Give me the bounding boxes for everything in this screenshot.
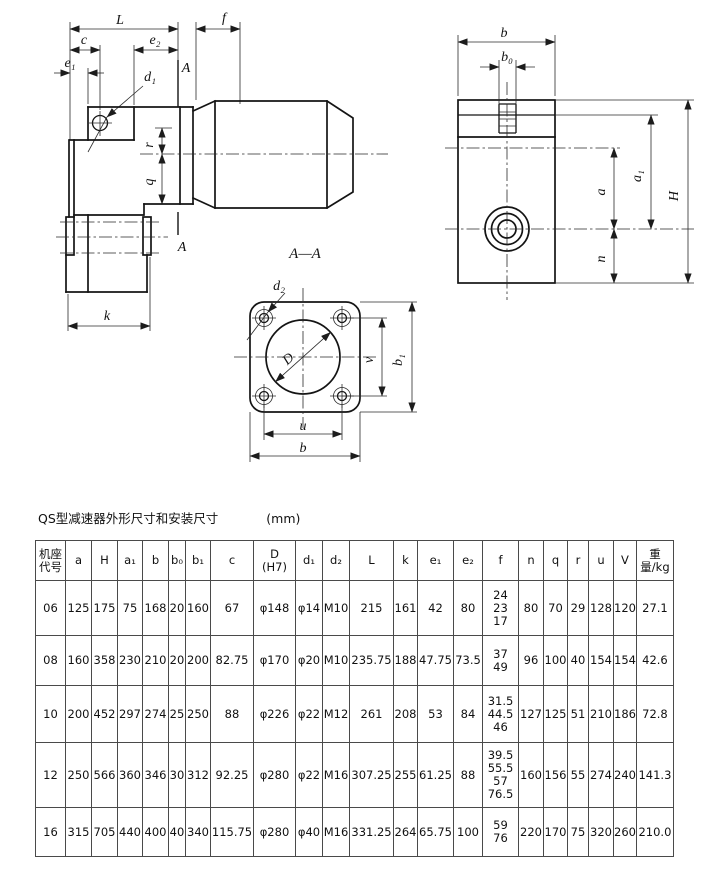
table-cell: 92.25	[211, 743, 254, 808]
table-cell: 440	[118, 808, 143, 857]
dim-label-r: r	[142, 142, 157, 148]
table-row: 16 315 705 440 400 40 340 115.75 φ280 φ4…	[36, 808, 674, 857]
table-cell: 80	[454, 581, 483, 636]
table-title: QS型减速器外形尺寸和安装尺寸	[38, 511, 218, 526]
dim-label-b-section: b	[300, 441, 307, 456]
table-cell: 160	[186, 581, 211, 636]
col-header: 机座 代号	[36, 541, 66, 581]
dim-label-d1: d₁	[144, 70, 156, 85]
table-cell: 210.0	[636, 808, 673, 857]
table-cell: φ280	[254, 808, 296, 857]
section-view: A—A D d₂	[234, 246, 417, 462]
table-cell: 566	[92, 743, 118, 808]
dim-label-k: k	[104, 309, 111, 324]
table-cell: 128	[589, 581, 614, 636]
table-cell: φ40	[296, 808, 323, 857]
table-cell: 75	[568, 808, 589, 857]
table-cell: 70	[544, 581, 568, 636]
table-cell: 240	[614, 743, 637, 808]
table-cell: 75	[118, 581, 143, 636]
dim-label-b-side: b	[501, 26, 508, 41]
table-cell: 170	[544, 808, 568, 857]
table-cell: 307.25	[350, 743, 394, 808]
table-cell: 250	[66, 743, 92, 808]
table-cell: 42.6	[636, 636, 673, 686]
table-cell: 115.75	[211, 808, 254, 857]
table-cell: 96	[519, 636, 544, 686]
table-cell: 230	[118, 636, 143, 686]
dim-label-b1: b₁	[391, 354, 406, 366]
col-header: e₂	[454, 541, 483, 581]
table-cell: 37 49	[483, 636, 519, 686]
dimension-table: 机座 代号 a H a₁ b b₀ b₁ c D (H7) d₁ d₂ L k …	[35, 540, 674, 857]
table-row: 12 250 566 360 346 30 312 92.25 φ280 φ22…	[36, 743, 674, 808]
table-cell: 65.75	[418, 808, 454, 857]
col-header: b₁	[186, 541, 211, 581]
table-row: 08 160 358 230 210 20 200 82.75 φ170 φ20…	[36, 636, 674, 686]
table-cell: 705	[92, 808, 118, 857]
table-cell: M16	[323, 743, 350, 808]
table-cell: 160	[66, 636, 92, 686]
col-header: b	[143, 541, 169, 581]
table-cell: 55	[568, 743, 589, 808]
table-cell: 141.3	[636, 743, 673, 808]
table-cell: 39.5 55.5 57 76.5	[483, 743, 519, 808]
table-cell: 215	[350, 581, 394, 636]
table-cell: 156	[544, 743, 568, 808]
table-cell: 274	[589, 743, 614, 808]
table-cell: φ22	[296, 686, 323, 743]
table-cell: 250	[186, 686, 211, 743]
table-cell: 154	[589, 636, 614, 686]
table-cell: φ20	[296, 636, 323, 686]
table-cell: 29	[568, 581, 589, 636]
dim-label-f: f	[222, 11, 228, 26]
table-cell: 274	[143, 686, 169, 743]
table-cell: φ280	[254, 743, 296, 808]
dim-label-a: a	[594, 189, 609, 196]
col-header: q	[544, 541, 568, 581]
dim-label-u: u	[300, 419, 307, 434]
table-cell: 40	[169, 808, 186, 857]
table-cell: 30	[169, 743, 186, 808]
table-cell: 59 76	[483, 808, 519, 857]
side-view: b b₀ a n a₁ H	[445, 26, 694, 300]
table-cell: 175	[92, 581, 118, 636]
table-cell: 24 23 17	[483, 581, 519, 636]
table-cell: 200	[186, 636, 211, 686]
table-cell: 16	[36, 808, 66, 857]
table-cell: 84	[454, 686, 483, 743]
table-cell: φ22	[296, 743, 323, 808]
col-header: d₂	[323, 541, 350, 581]
table-cell: 346	[143, 743, 169, 808]
col-header: u	[589, 541, 614, 581]
table-row: 10 200 452 297 274 25 250 88 φ226 φ22 M1…	[36, 686, 674, 743]
dim-label-b0: b₀	[501, 50, 513, 65]
col-header: H	[92, 541, 118, 581]
dim-label-q: q	[142, 179, 157, 186]
table-cell: 88	[211, 686, 254, 743]
table-cell: 260	[614, 808, 637, 857]
table-cell: 25	[169, 686, 186, 743]
col-header: n	[519, 541, 544, 581]
table-cell: 235.75	[350, 636, 394, 686]
table-cell: 452	[92, 686, 118, 743]
table-cell: 360	[118, 743, 143, 808]
table-cell: φ170	[254, 636, 296, 686]
dim-label-d2: d₂	[273, 279, 285, 294]
dim-label-a1: a₁	[630, 170, 645, 182]
table-cell: 220	[519, 808, 544, 857]
table-cell: 31.5 44.5 46	[483, 686, 519, 743]
table-cell: 40	[568, 636, 589, 686]
table-cell: 27.1	[636, 581, 673, 636]
table-cell: 10	[36, 686, 66, 743]
col-header: 重量/kg	[636, 541, 673, 581]
table-cell: M12	[323, 686, 350, 743]
table-cell: 125	[544, 686, 568, 743]
table-cell: 61.25	[418, 743, 454, 808]
col-header: a	[66, 541, 92, 581]
dim-label-L: L	[115, 13, 124, 28]
dim-label-n: n	[594, 256, 609, 263]
table-cell: M10	[323, 581, 350, 636]
table-cell: φ14	[296, 581, 323, 636]
table-cell: 100	[544, 636, 568, 686]
col-header: D (H7)	[254, 541, 296, 581]
dim-label-D: D	[279, 350, 297, 369]
table-cell: M16	[323, 808, 350, 857]
table-cell: 42	[418, 581, 454, 636]
col-header: d₁	[296, 541, 323, 581]
col-header: k	[394, 541, 418, 581]
table-cell: 340	[186, 808, 211, 857]
table-cell: 73.5	[454, 636, 483, 686]
table-cell: 210	[589, 686, 614, 743]
table-cell: 161	[394, 581, 418, 636]
col-header: c	[211, 541, 254, 581]
table-cell: 125	[66, 581, 92, 636]
table-cell: 47.75	[418, 636, 454, 686]
table-cell: 208	[394, 686, 418, 743]
col-header: a₁	[118, 541, 143, 581]
section-title: A—A	[288, 246, 322, 262]
table-cell: 51	[568, 686, 589, 743]
technical-drawing: L f c e₂ e₁ d₁ A A r q k A—A	[0, 0, 716, 500]
table-row: 06 125 175 75 168 20 160 67 φ148 φ14 M10…	[36, 581, 674, 636]
col-header: b₀	[169, 541, 186, 581]
table-cell: 168	[143, 581, 169, 636]
catalog-page: L f c e₂ e₁ d₁ A A r q k A—A	[0, 0, 716, 884]
table-cell: 264	[394, 808, 418, 857]
table-cell: 53	[418, 686, 454, 743]
table-cell: 100	[454, 808, 483, 857]
table-cell: φ226	[254, 686, 296, 743]
table-cell: 06	[36, 581, 66, 636]
table-cell: 127	[519, 686, 544, 743]
table-cell: 160	[519, 743, 544, 808]
table-cell: 312	[186, 743, 211, 808]
col-header: V	[614, 541, 637, 581]
section-label-a-top: A	[181, 61, 191, 76]
table-cell: 186	[614, 686, 637, 743]
table-cell: 188	[394, 636, 418, 686]
table-cell: M10	[323, 636, 350, 686]
table-cell: 20	[169, 636, 186, 686]
table-cell: 320	[589, 808, 614, 857]
dim-label-H: H	[667, 190, 682, 202]
table-cell: 315	[66, 808, 92, 857]
section-label-a-bottom: A	[177, 240, 187, 255]
table-unit: (mm)	[266, 511, 300, 526]
table-cell: 82.75	[211, 636, 254, 686]
header-row: 机座 代号 a H a₁ b b₀ b₁ c D (H7) d₁ d₂ L k …	[36, 541, 674, 581]
table-cell: 20	[169, 581, 186, 636]
table-cell: 80	[519, 581, 544, 636]
dim-label-c: c	[81, 33, 88, 48]
table-cell: 72.8	[636, 686, 673, 743]
table-cell: 297	[118, 686, 143, 743]
col-header: r	[568, 541, 589, 581]
table-cell: 200	[66, 686, 92, 743]
table-cell: 255	[394, 743, 418, 808]
table-cell: φ148	[254, 581, 296, 636]
table-cell: 12	[36, 743, 66, 808]
table-cell: 261	[350, 686, 394, 743]
table-cell: 210	[143, 636, 169, 686]
table-cell: 88	[454, 743, 483, 808]
col-header: L	[350, 541, 394, 581]
col-header: f	[483, 541, 519, 581]
table-cell: 400	[143, 808, 169, 857]
front-view: L f c e₂ e₁ d₁ A A r q k	[54, 11, 388, 331]
dim-label-v: v	[362, 356, 377, 363]
table-cell: 120	[614, 581, 637, 636]
table-cell: 154	[614, 636, 637, 686]
table-caption: QS型减速器外形尺寸和安装尺寸(mm)	[38, 508, 300, 527]
table-cell: 67	[211, 581, 254, 636]
table-cell: 331.25	[350, 808, 394, 857]
col-header: e₁	[418, 541, 454, 581]
dim-label-e1: e₁	[64, 56, 75, 71]
dim-label-e2: e₂	[149, 33, 160, 48]
table-cell: 358	[92, 636, 118, 686]
table-cell: 08	[36, 636, 66, 686]
